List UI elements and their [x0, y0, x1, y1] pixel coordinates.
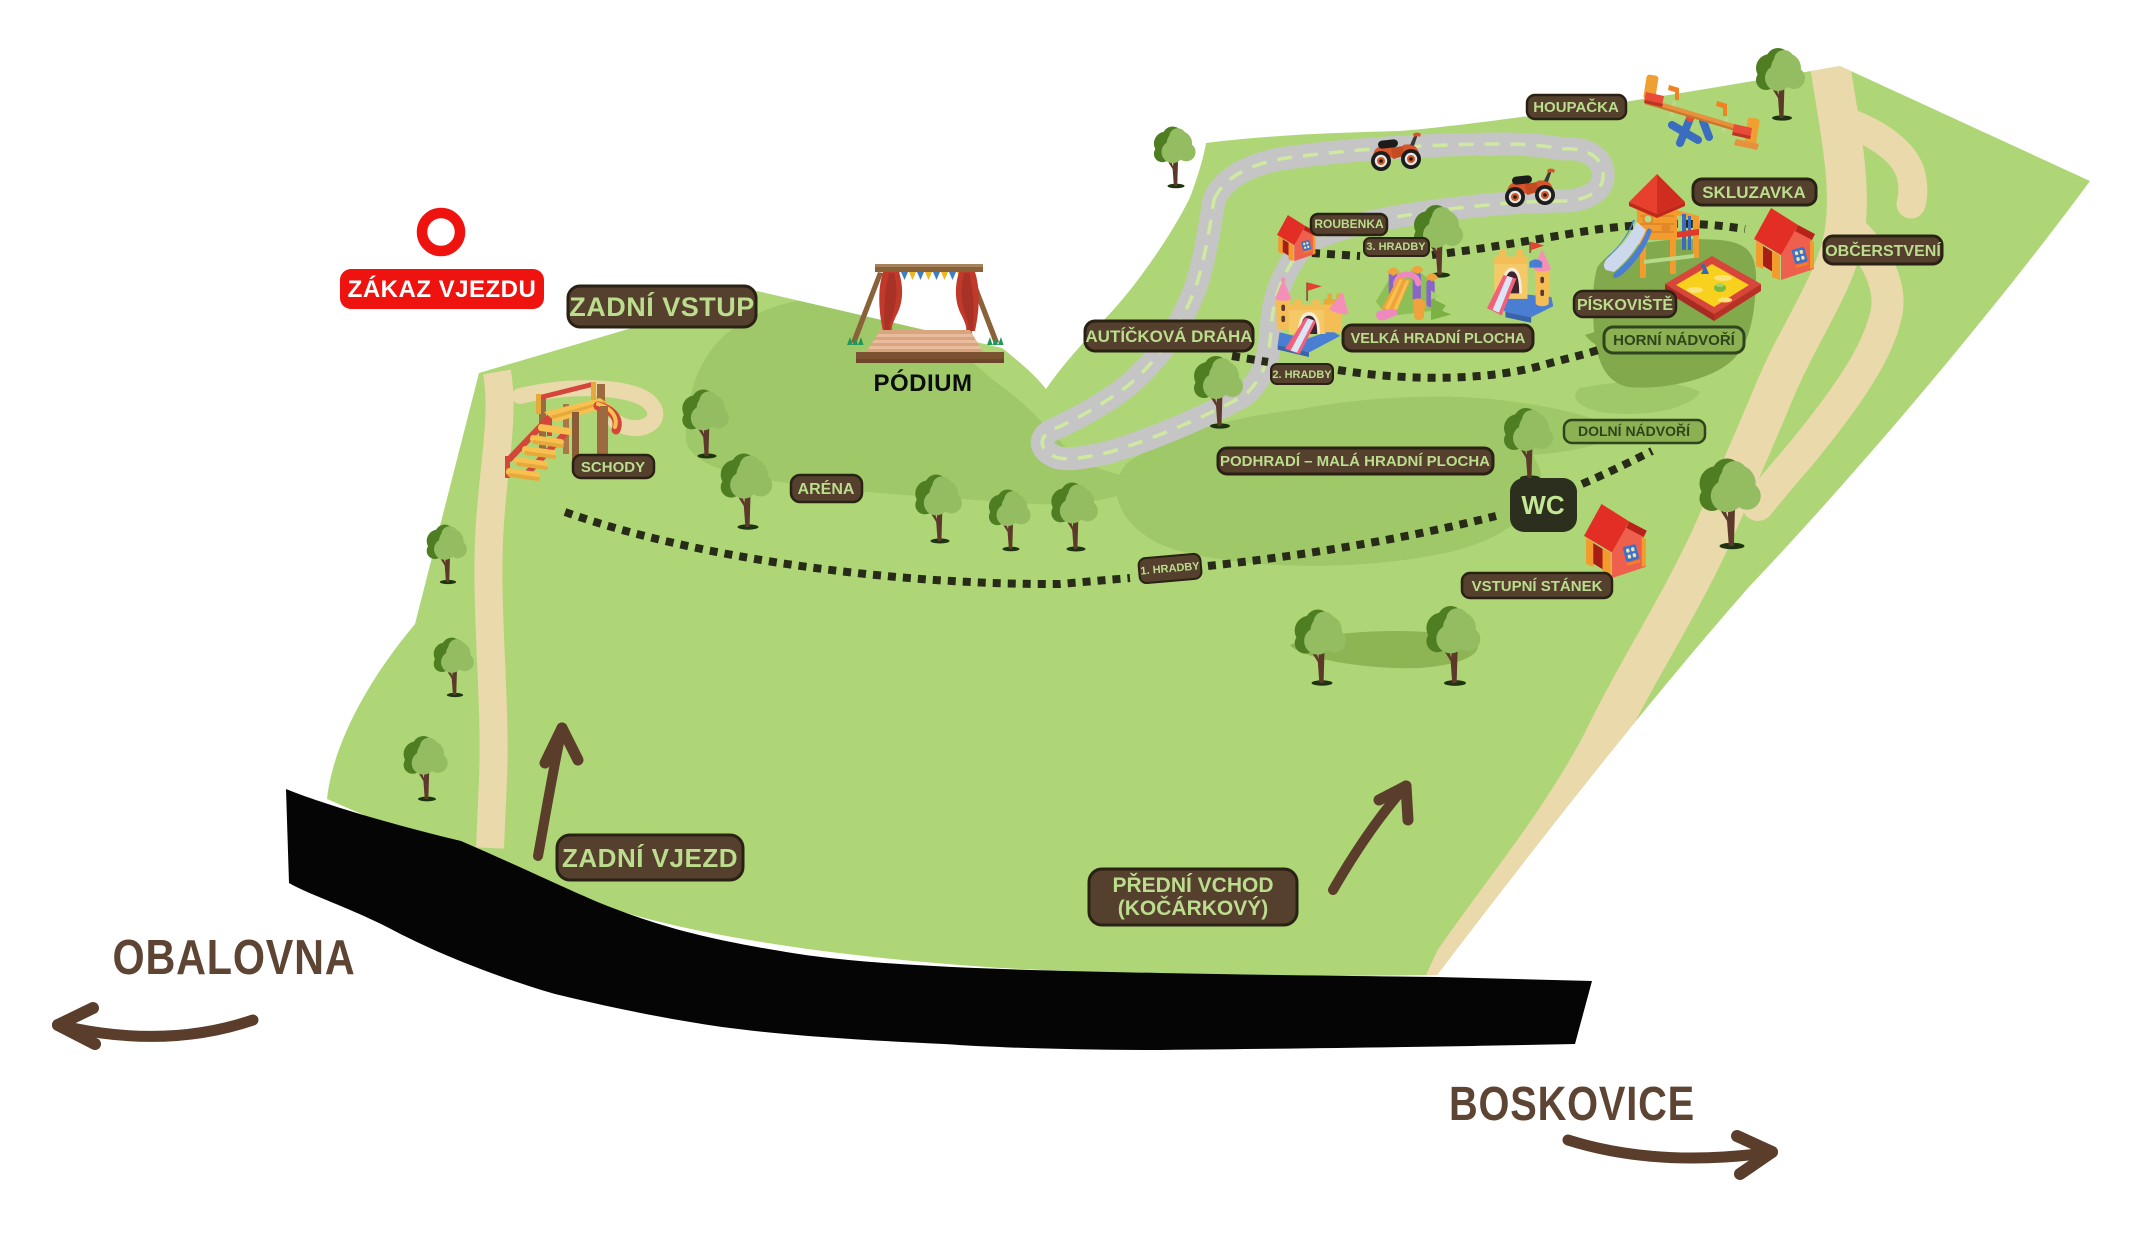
svg-text:PÍSKOVIŠTĚ: PÍSKOVIŠTĚ	[1577, 295, 1673, 314]
svg-text:ZADNÍ VSTUP: ZADNÍ VSTUP	[569, 291, 755, 322]
svg-text:3. HRADBY: 3. HRADBY	[1366, 241, 1426, 253]
svg-text:PŘEDNÍ VCHOD: PŘEDNÍ VCHOD	[1112, 873, 1273, 897]
svg-text:BOSKOVICE: BOSKOVICE	[1449, 1078, 1695, 1131]
svg-text:VELKÁ HRADNÍ PLOCHA: VELKÁ HRADNÍ PLOCHA	[1351, 330, 1526, 347]
svg-text:OBČERSTVENÍ: OBČERSTVENÍ	[1825, 241, 1941, 260]
svg-text:ROUBENKA: ROUBENKA	[1314, 217, 1384, 231]
svg-text:(KOČÁRKOVÝ): (KOČÁRKOVÝ)	[1118, 896, 1269, 920]
svg-text:VSTUPNÍ STÁNEK: VSTUPNÍ STÁNEK	[1472, 578, 1603, 595]
svg-text:SCHODY: SCHODY	[581, 459, 645, 476]
svg-text:ZÁKAZ VJEZDU: ZÁKAZ VJEZDU	[348, 275, 537, 303]
svg-text:PÓDIUM: PÓDIUM	[874, 369, 973, 397]
svg-text:PODHRADÍ – MALÁ HRADNÍ PLOCHA: PODHRADÍ – MALÁ HRADNÍ PLOCHA	[1220, 453, 1490, 470]
svg-text:ZADNÍ VJEZD: ZADNÍ VJEZD	[562, 843, 738, 873]
svg-text:WC: WC	[1521, 490, 1565, 520]
svg-text:DOLNÍ NÁDVOŘÍ: DOLNÍ NÁDVOŘÍ	[1578, 422, 1691, 439]
svg-text:OBALOVNA: OBALOVNA	[113, 931, 356, 985]
svg-text:2. HRADBY: 2. HRADBY	[1272, 369, 1332, 381]
svg-text:ARÉNA: ARÉNA	[798, 479, 855, 498]
svg-text:HOUPAČKA: HOUPAČKA	[1533, 98, 1619, 116]
svg-text:HORNÍ NÁDVOŘÍ: HORNÍ NÁDVOŘÍ	[1613, 331, 1736, 349]
svg-text:AUTÍČKOVÁ DRÁHA: AUTÍČKOVÁ DRÁHA	[1085, 327, 1252, 346]
svg-text:SKLUZAVKA: SKLUZAVKA	[1702, 183, 1806, 202]
